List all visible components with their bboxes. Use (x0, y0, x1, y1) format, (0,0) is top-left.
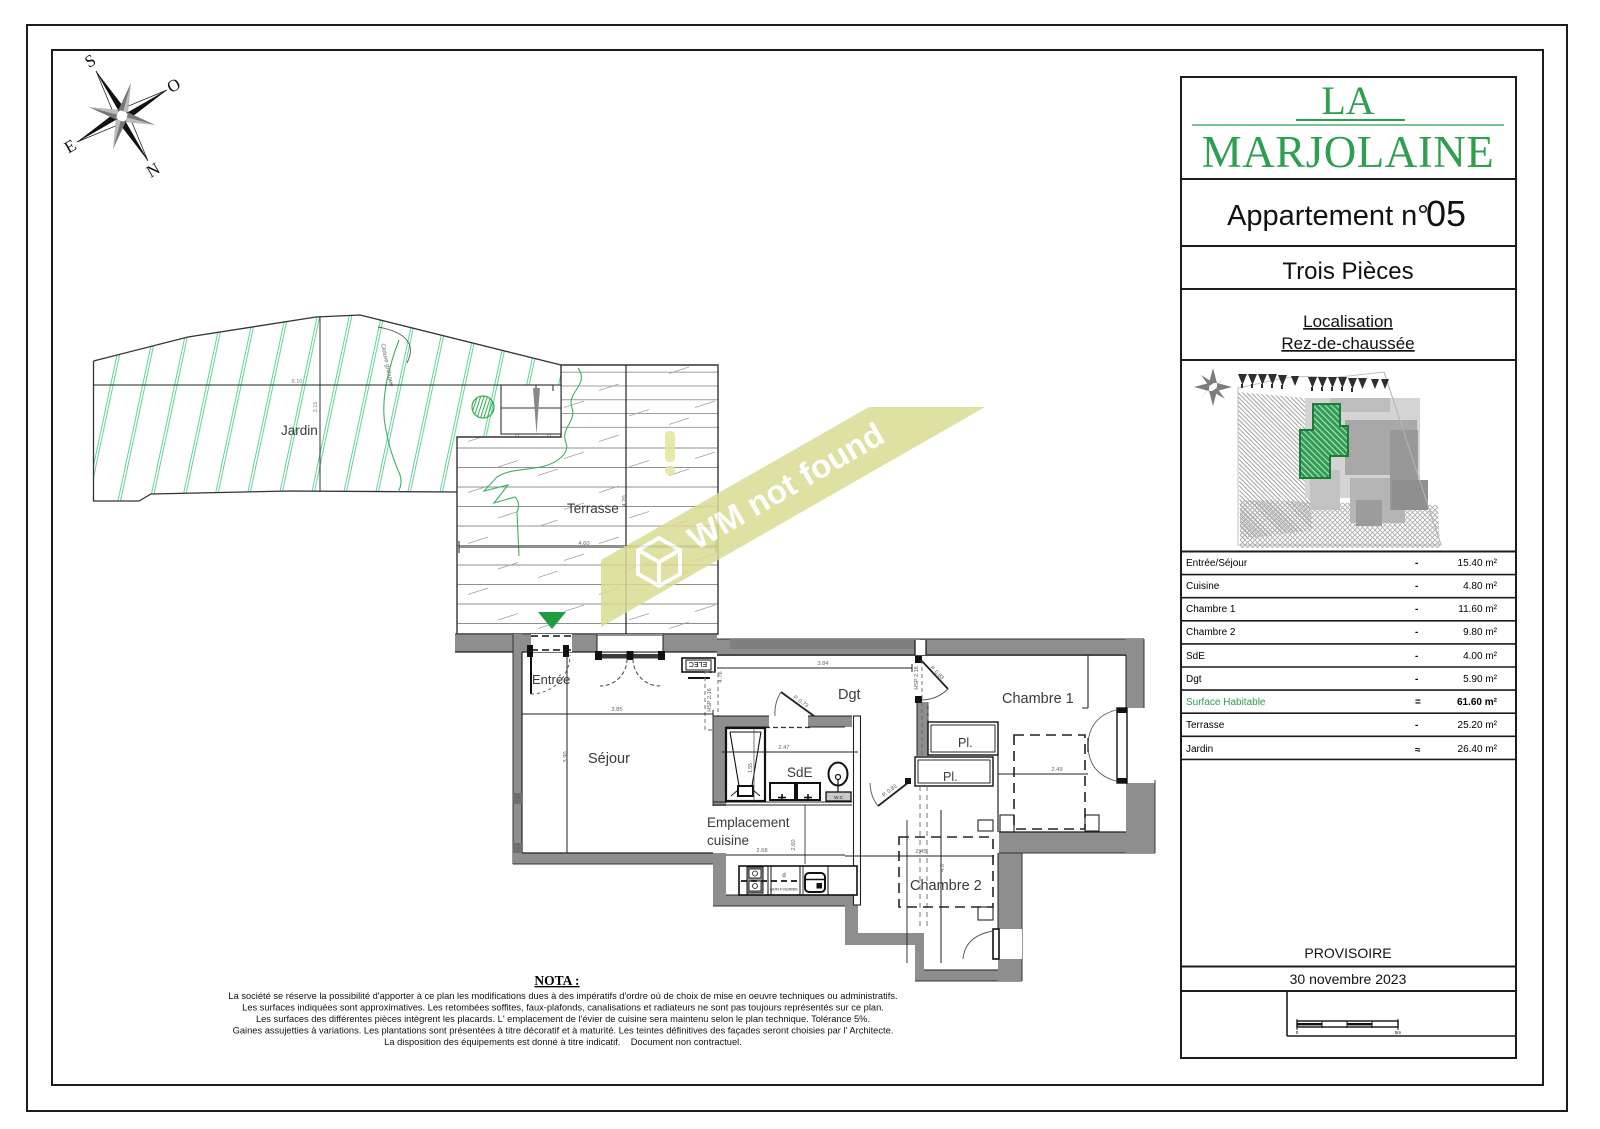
svg-text:Localisation: Localisation (1303, 312, 1393, 331)
svg-text:Les surfaces des différentes p: Les surfaces des différentes pièces intè… (256, 1014, 870, 1024)
svg-text:4.20: 4.20 (622, 495, 628, 506)
svg-text:25.20 m²: 25.20 m² (1458, 720, 1498, 731)
svg-text:La société se réserve la possi: La société se réserve la possibilité d'a… (228, 991, 897, 1001)
svg-text:Dgt: Dgt (1186, 674, 1202, 685)
svg-text:Les surfaces indiquées sont ap: Les surfaces indiquées sont approximativ… (242, 1003, 884, 1013)
svg-text:11.60 m²: 11.60 m² (1458, 604, 1497, 615)
svg-text:Dgt: Dgt (838, 687, 861, 703)
svg-text:3.90: 3.90 (563, 751, 569, 762)
svg-text:2.68: 2.68 (756, 848, 767, 854)
svg-text:Chambre 2: Chambre 2 (910, 878, 982, 894)
svg-text:1.55: 1.55 (748, 763, 754, 773)
svg-text:2.49: 2.49 (1051, 767, 1062, 773)
svg-text:4.0: 4.0 (940, 864, 946, 872)
svg-text:Chambre 1: Chambre 1 (1002, 691, 1074, 707)
svg-text:2.60: 2.60 (791, 839, 797, 850)
svg-text:Gaines assujetties à variation: Gaines assujetties à variations. Les pla… (233, 1026, 894, 1036)
svg-text:Terrasse: Terrasse (1186, 720, 1225, 731)
svg-text:SdE: SdE (1186, 651, 1205, 662)
svg-text:-: - (1415, 720, 1418, 731)
svg-text:Surface Habitable: Surface Habitable (1186, 697, 1266, 708)
svg-text:LA: LA (1321, 78, 1374, 123)
svg-text:d: d (782, 873, 785, 879)
svg-text:-: - (1415, 604, 1418, 615)
svg-text:2.47: 2.47 (778, 745, 789, 751)
svg-text:NOTA :: NOTA : (534, 973, 579, 988)
svg-text:ELEC: ELEC (689, 660, 707, 667)
svg-text:W.C: W.C (834, 795, 844, 801)
svg-text:Terrasse: Terrasse (567, 501, 619, 516)
svg-text:HSP 2.16: HSP 2.16 (914, 666, 920, 689)
svg-text:HSP 2.16: HSP 2.16 (707, 688, 713, 711)
svg-text:05: 05 (1426, 193, 1466, 234)
svg-text:3.15: 3.15 (313, 402, 319, 413)
svg-text:8.10: 8.10 (292, 379, 303, 385)
svg-text:Jardin: Jardin (281, 423, 318, 438)
svg-text:La disposition des équipements: La disposition des équipements est donné… (384, 1037, 742, 1047)
svg-text:Jardin: Jardin (1186, 744, 1213, 755)
svg-text:30 novembre 2023: 30 novembre 2023 (1290, 971, 1407, 987)
svg-text:61.60 m²: 61.60 m² (1457, 697, 1498, 708)
svg-text:4.60: 4.60 (578, 541, 589, 547)
svg-text:Entrée: Entrée (532, 672, 570, 687)
svg-text:5.90 m²: 5.90 m² (1463, 674, 1498, 685)
svg-text:Chambre 1: Chambre 1 (1186, 604, 1236, 615)
svg-text:3.84: 3.84 (817, 661, 829, 667)
svg-text:4.76: 4.76 (718, 671, 724, 682)
svg-text:≈: ≈ (1415, 745, 1421, 756)
svg-text:26.40 m²: 26.40 m² (1458, 744, 1498, 755)
svg-text:-: - (1415, 674, 1418, 685)
svg-text:=: = (1415, 697, 1421, 708)
svg-text:9.80 m²: 9.80 m² (1463, 627, 1498, 638)
svg-text:Cuisine: Cuisine (1186, 581, 1220, 592)
svg-text:SdE: SdE (787, 765, 813, 780)
svg-text:2.45: 2.45 (915, 849, 926, 855)
svg-text:-: - (1415, 558, 1418, 569)
svg-text:Trois Pièces: Trois Pièces (1282, 258, 1413, 285)
svg-text:4.00 m²: 4.00 m² (1463, 651, 1498, 662)
svg-text:MARJOLAINE: MARJOLAINE (1202, 127, 1495, 177)
svg-text:4.80 m²: 4.80 m² (1463, 581, 1498, 592)
svg-text:3.85: 3.85 (611, 707, 622, 713)
svg-text:Appartement n°: Appartement n° (1227, 200, 1429, 232)
svg-text:15.40 m²: 15.40 m² (1458, 558, 1498, 569)
svg-text:Entrée/Séjour: Entrée/Séjour (1186, 558, 1248, 569)
svg-text:Rez-de-chaussée: Rez-de-chaussée (1281, 334, 1414, 353)
svg-text:PROVISOIRE: PROVISOIRE (1304, 945, 1391, 961)
svg-text:Séjour: Séjour (588, 751, 630, 767)
svg-text:NON FOURNIE: NON FOURNIE (770, 887, 798, 892)
svg-text:-: - (1415, 581, 1418, 592)
svg-text:-: - (1415, 627, 1418, 638)
svg-text:-: - (1415, 651, 1418, 662)
svg-text:Pl.: Pl. (943, 770, 958, 784)
svg-text:Pl.: Pl. (958, 736, 973, 750)
svg-text:cuisine: cuisine (707, 833, 749, 848)
svg-text:Emplacement: Emplacement (707, 815, 790, 830)
svg-text:5m: 5m (1395, 1030, 1402, 1035)
svg-text:Chambre 2: Chambre 2 (1186, 627, 1236, 638)
